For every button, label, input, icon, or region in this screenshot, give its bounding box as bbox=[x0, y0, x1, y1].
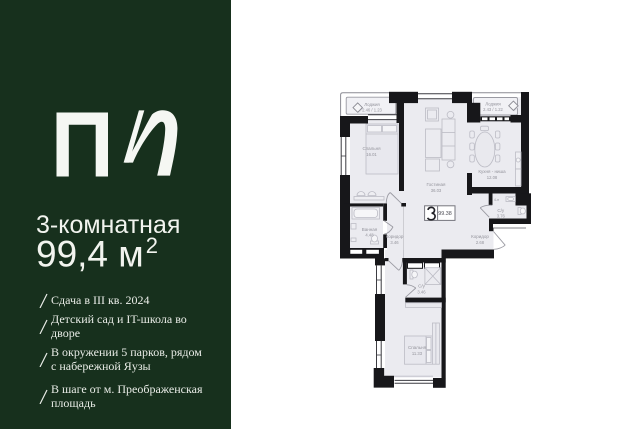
svg-text:3.76: 3.76 bbox=[497, 214, 506, 219]
svg-text:3.46: 3.46 bbox=[417, 290, 426, 295]
svg-text:3.46: 3.46 bbox=[390, 240, 399, 245]
svg-text:С/у: С/у bbox=[497, 208, 505, 213]
svg-text:2.46 / 1.23: 2.46 / 1.23 bbox=[362, 108, 382, 113]
svg-text:Гостиная: Гостиная bbox=[427, 182, 446, 187]
svg-text:Спальня: Спальня bbox=[408, 345, 427, 350]
svg-text:Кухня - ниша: Кухня - ниша bbox=[478, 169, 506, 174]
svg-text:С/у: С/у bbox=[418, 284, 426, 289]
svg-text:Спальня: Спальня bbox=[362, 146, 381, 151]
svg-text:4.48: 4.48 bbox=[365, 233, 374, 238]
svg-text:11.33: 11.33 bbox=[412, 351, 423, 356]
svg-text:Лоджия: Лоджия bbox=[485, 102, 501, 107]
svg-text:12.08: 12.08 bbox=[487, 175, 498, 180]
svg-text:Коридор: Коридор bbox=[471, 234, 489, 239]
svg-text:2.68: 2.68 bbox=[476, 240, 485, 245]
svg-text:2.43 / 1.22: 2.43 / 1.22 bbox=[483, 107, 503, 112]
svg-text:Ванная: Ванная bbox=[362, 227, 378, 232]
svg-text:36.03: 36.03 bbox=[431, 188, 442, 193]
svg-text:4-н: 4-н bbox=[494, 198, 499, 202]
svg-text:Лоджия: Лоджия bbox=[364, 102, 380, 107]
svg-text:99.38: 99.38 bbox=[438, 211, 452, 217]
svg-text:Коридор: Коридор bbox=[386, 234, 404, 239]
svg-text:16.01: 16.01 bbox=[366, 152, 377, 157]
